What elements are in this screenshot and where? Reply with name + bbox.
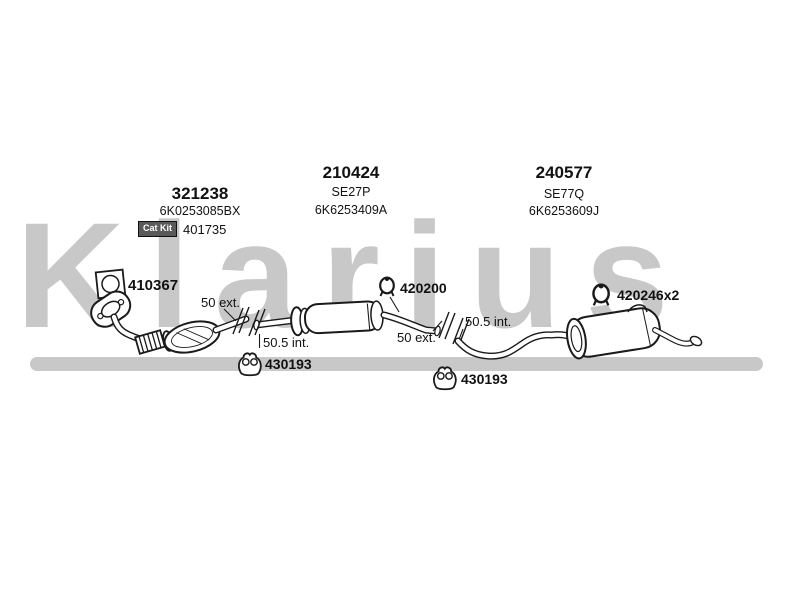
- clamp-rear-part-number: 420246x2: [617, 287, 679, 303]
- joint-rear-ext-dimension: 50 ext.: [397, 330, 436, 345]
- hanger-front-part-number: 430193: [265, 356, 312, 372]
- clamp-centre-part-number: 420200: [400, 280, 447, 296]
- cat-kit-badge: Cat Kit: [138, 221, 177, 237]
- clamp-icon: [380, 277, 394, 296]
- rear-silencer-part-number: 240577: [522, 163, 606, 183]
- rear-silencer-oe-number: 6K6253609J: [522, 204, 606, 218]
- front-pipe-oe-number: 6K0253085BX: [150, 204, 250, 218]
- cat-kit-row: Cat Kit 401735: [138, 221, 226, 237]
- exhaust-system-drawing: [0, 0, 800, 600]
- flange-gasket-part-number: 410367: [128, 277, 178, 294]
- cat-kit-number: 401735: [183, 222, 226, 237]
- front-pipe-part-number: 321238: [159, 184, 241, 204]
- joint-front-int-dimension: 50.5 int.: [263, 335, 309, 350]
- clamp-icon: [593, 284, 608, 306]
- hanger-icon: [239, 353, 261, 375]
- tailpipe: [655, 330, 703, 347]
- clamp-centre-leader-line: [390, 297, 399, 312]
- centre-silencer-oe-number: 6K6253409A: [310, 203, 392, 217]
- rear-inlet-pipe: [458, 335, 572, 357]
- flex-joint: [135, 330, 165, 354]
- exhaust-diagram-page: Klarius: [0, 0, 800, 600]
- hanger-rear-part-number: 430193: [461, 371, 508, 387]
- rear-silencer-code: SE77Q: [522, 187, 606, 201]
- rear-silencer: [564, 306, 662, 360]
- downpipe: [114, 317, 140, 339]
- joint-rear-int-dimension: 50.5 int.: [465, 314, 511, 329]
- centre-silencer: [290, 301, 383, 336]
- hanger-icon: [434, 367, 456, 389]
- joint-front-ext-dimension: 50 ext.: [201, 295, 240, 310]
- centre-silencer-code: SE27P: [310, 185, 392, 199]
- centre-silencer-part-number: 210424: [310, 163, 392, 183]
